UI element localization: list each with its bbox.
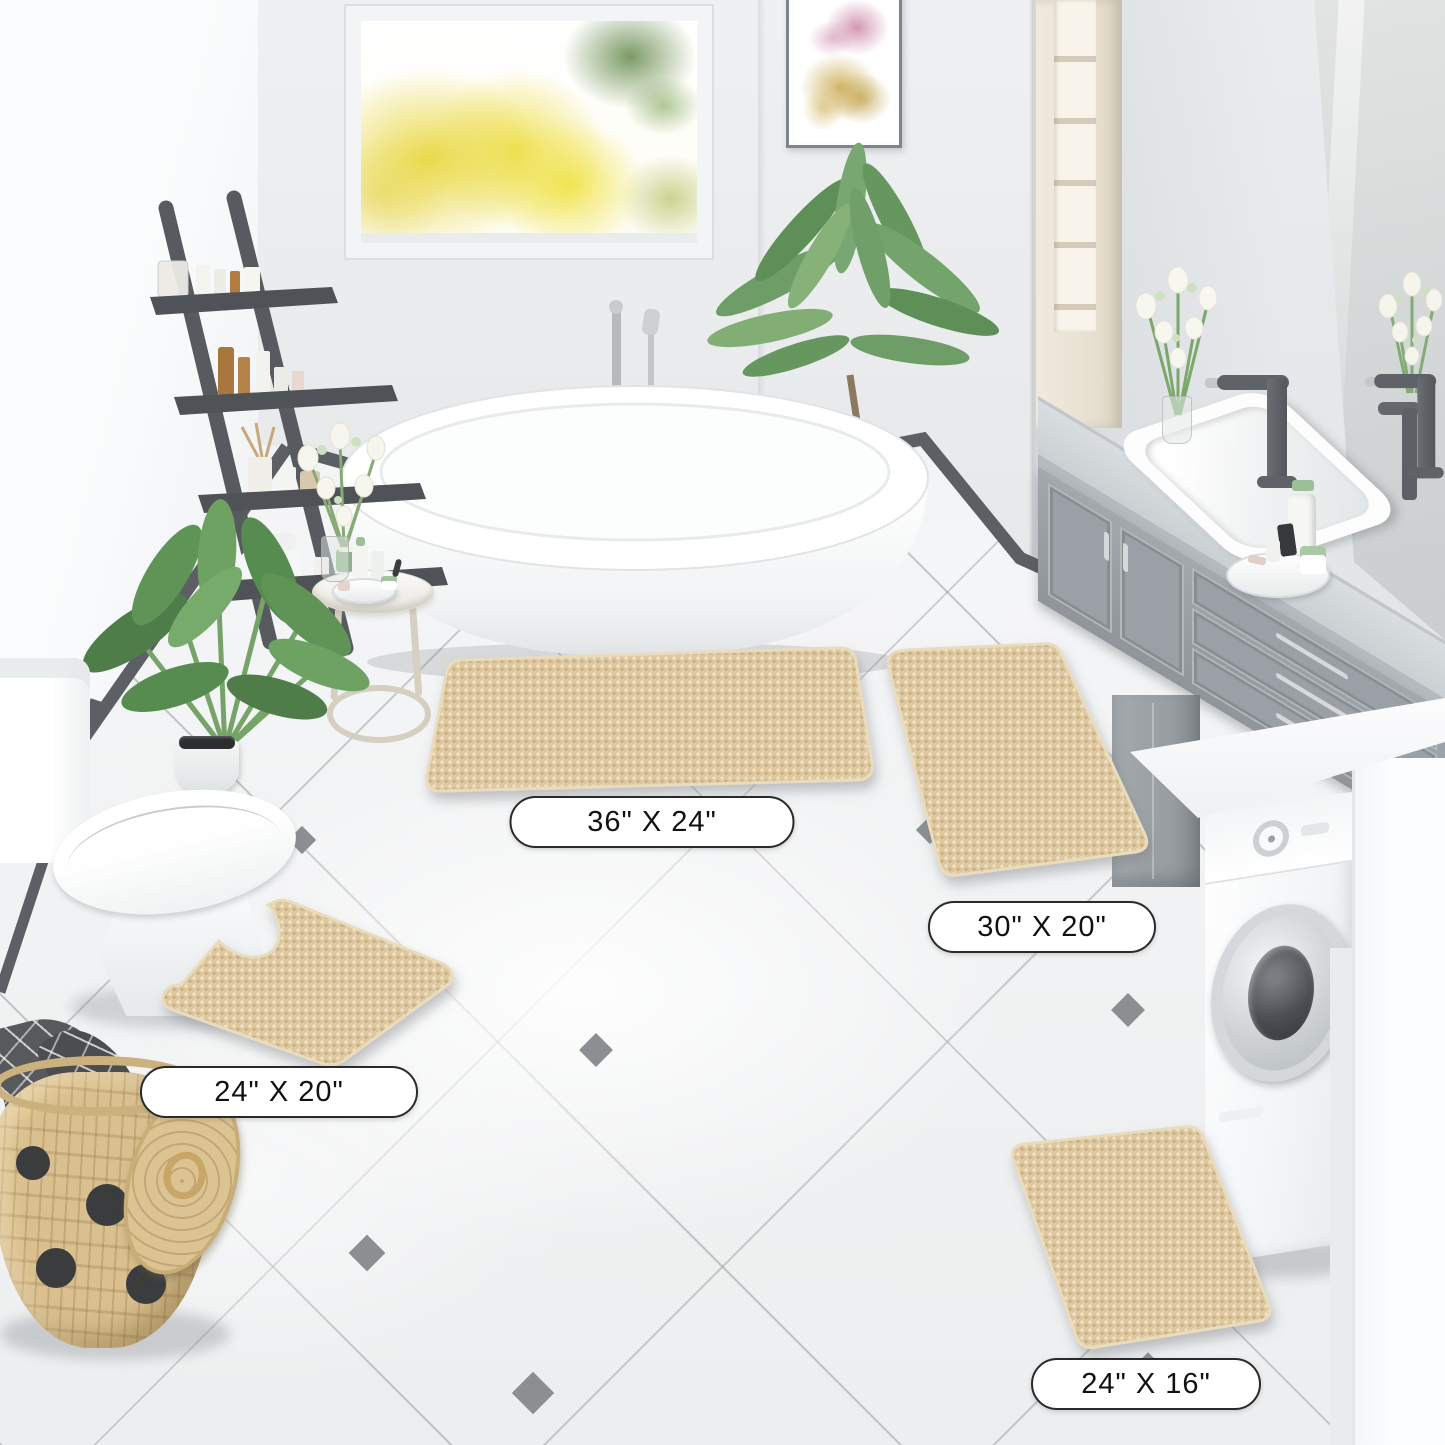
bath-mat-30x20 xyxy=(888,644,1147,876)
size-label-24x16: 24" X 16" xyxy=(1031,1358,1261,1410)
bath-mats xyxy=(0,0,1445,1445)
size-label-text: 36" X 24" xyxy=(587,806,717,839)
size-label-30x20: 30" X 20" xyxy=(928,901,1156,953)
size-label-text: 24" X 16" xyxy=(1081,1368,1211,1401)
contour-mat-24x20 xyxy=(163,900,452,1064)
bath-mat-24x16 xyxy=(1013,1127,1270,1348)
bathroom-scene: 36" X 24" 30" X 20" 24" X 20" 24" X 16" xyxy=(0,0,1445,1445)
size-label-36x24: 36" X 24" xyxy=(510,796,795,848)
size-label-text: 30" X 20" xyxy=(977,911,1107,944)
bath-mat-36x24 xyxy=(427,648,872,791)
size-label-24x20: 24" X 20" xyxy=(140,1066,418,1118)
size-label-text: 24" X 20" xyxy=(214,1076,344,1109)
